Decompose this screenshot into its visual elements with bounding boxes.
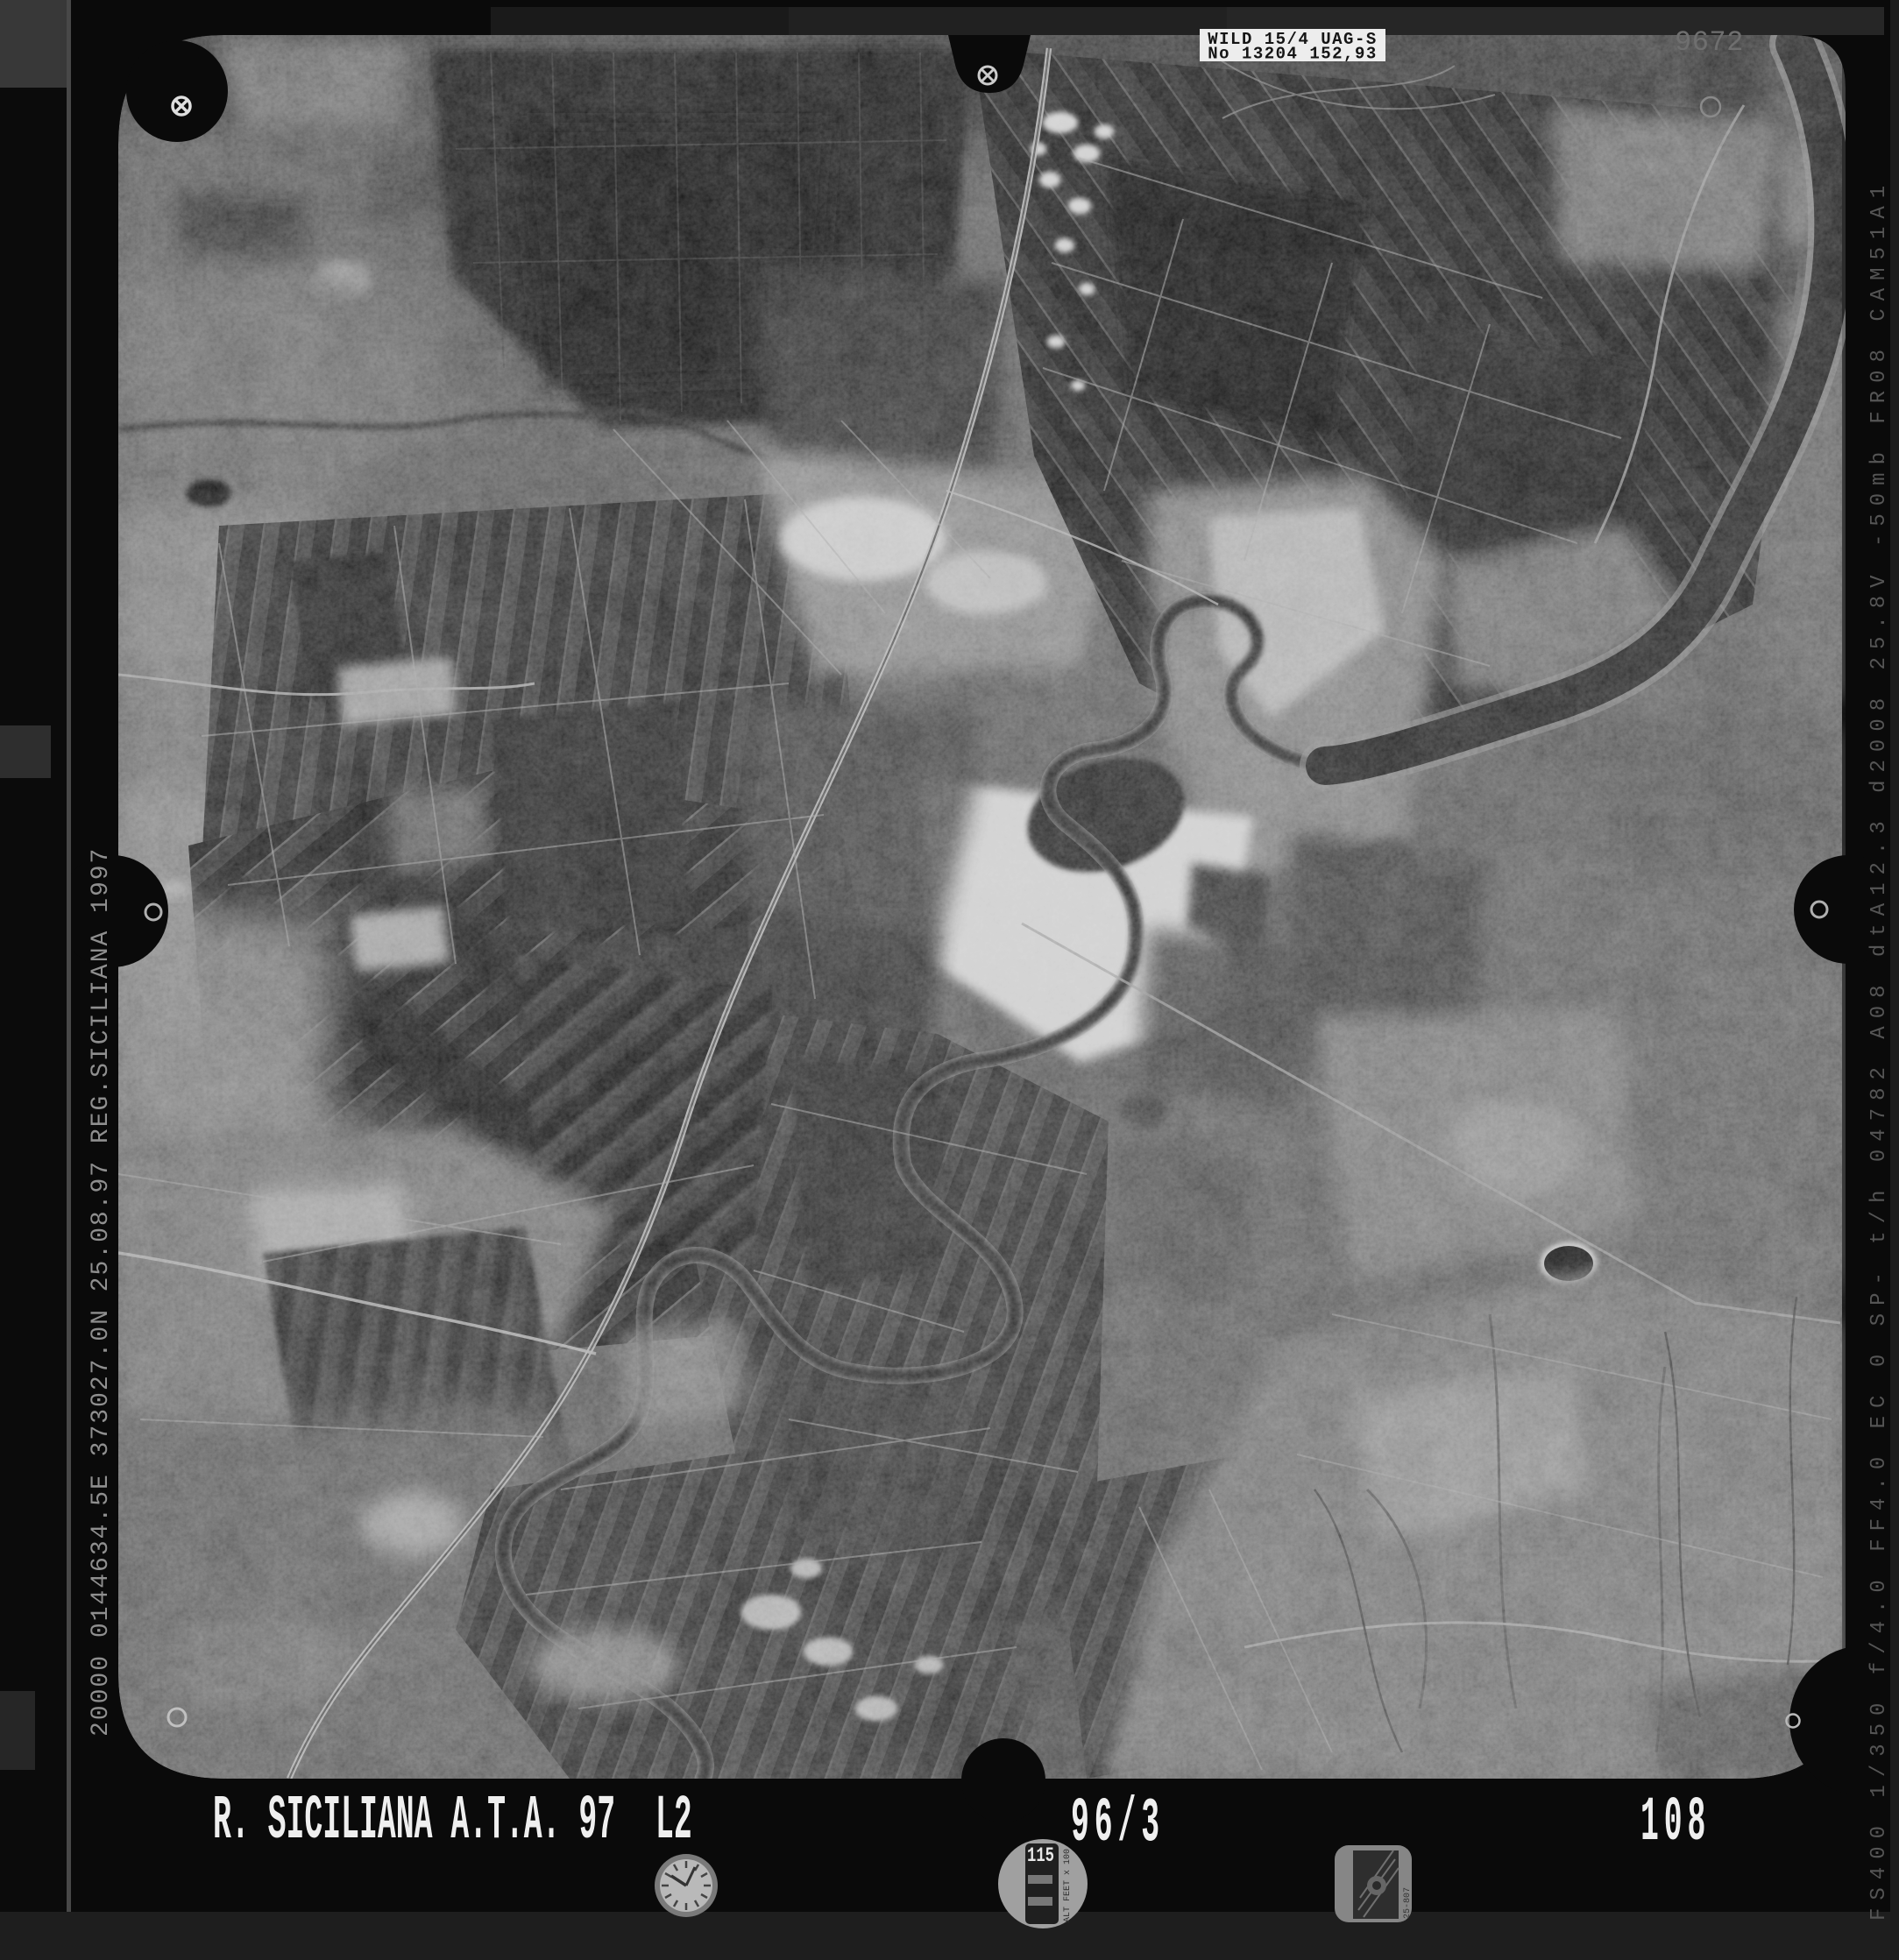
svg-text:ALT FEET x 100: ALT FEET x 100 (1063, 1849, 1073, 1922)
svg-text:9672: 9672 (1675, 26, 1744, 59)
svg-text:108: 108 (1640, 1787, 1711, 1857)
svg-text:96/3: 96/3 (1071, 1787, 1165, 1858)
svg-text:FS400 1/350 f/4.0 FF4.0 EC 0: FS400 1/350 f/4.0 FF4.0 EC 0 SP- t/h 047… (1867, 178, 1891, 1921)
svg-text:115: 115 (1027, 1845, 1054, 1868)
svg-text:25-807: 25-807 (1403, 1887, 1413, 1919)
svg-text:R. SICILIANA A.T.A. 97: R. SICILIANA A.T.A. 97 (213, 1785, 615, 1856)
svg-text:No 13204 152,93: No 13204 152,93 (1208, 45, 1378, 64)
svg-text:L2: L2 (655, 1785, 692, 1856)
svg-text:20000 0144634.5E 373027.0N 25.: 20000 0144634.5E 373027.0N 25.08.97 REG.… (88, 847, 115, 1737)
